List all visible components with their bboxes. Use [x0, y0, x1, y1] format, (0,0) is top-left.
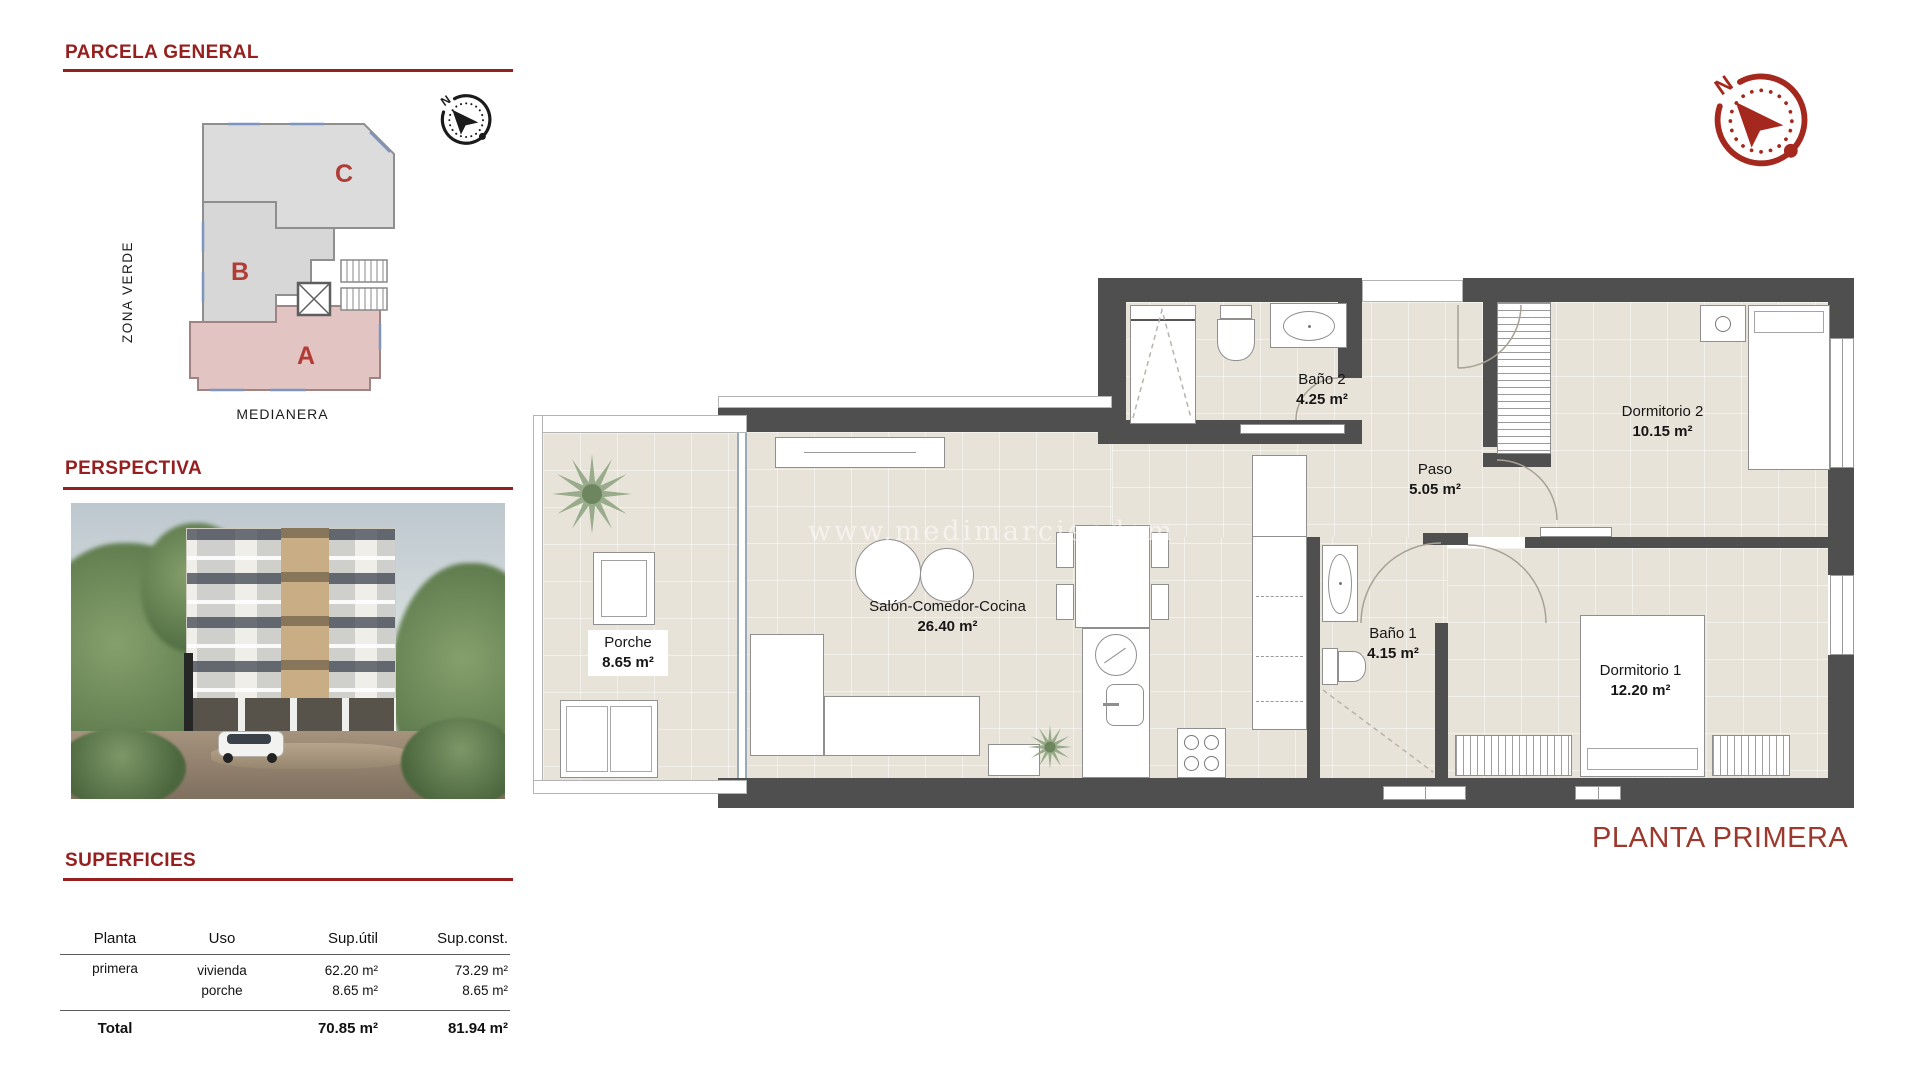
wall: [1483, 453, 1551, 467]
porch-wall: [533, 415, 747, 433]
wall: [1423, 533, 1468, 545]
window: [1575, 786, 1621, 800]
room-area: 4.15 m²: [1343, 644, 1443, 664]
porch-wall: [533, 415, 543, 794]
kitchen-sink: [1106, 684, 1144, 726]
room-label-bano1: Baño 1 4.15 m²: [1343, 624, 1443, 664]
cell-line: 73.29 m²: [380, 961, 508, 981]
round-table: [920, 548, 974, 602]
wall: [1307, 537, 1320, 778]
staircase: [1497, 302, 1551, 454]
cell-planta: primera: [60, 961, 170, 1002]
nightstand: [1700, 305, 1746, 342]
room-area: 12.20 m²: [1558, 681, 1723, 701]
room-name: Baño 2: [1272, 370, 1372, 390]
plant: [1028, 722, 1072, 772]
wall: [1828, 302, 1854, 338]
medianera-label: MEDIANERA: [200, 406, 365, 422]
brochure-page: { "accent_color": "#96201f", "compass_co…: [0, 0, 1920, 1080]
col-header: Planta: [60, 930, 170, 947]
room-area: 4.25 m²: [1272, 390, 1372, 410]
room-name: Salón-Comedor-Cocina: [860, 597, 1035, 617]
cell-line: vivienda: [170, 961, 274, 981]
window: [1362, 280, 1463, 302]
pillar: [184, 653, 193, 738]
window: [1383, 786, 1466, 800]
cell-line: 8.65 m²: [380, 981, 508, 1001]
stairs-shape: [341, 260, 387, 282]
towel-rail: [1240, 424, 1345, 434]
title-underline-3: [63, 878, 513, 881]
toilet: [1217, 319, 1255, 361]
table-total-row: Total 70.85 m² 81.94 m²: [60, 1011, 510, 1037]
car-window: [227, 734, 271, 744]
wall: [718, 778, 1854, 808]
room-area: 8.65 m²: [588, 653, 668, 673]
wall: [718, 408, 1112, 432]
total-sup-util: 70.85 m²: [274, 1020, 380, 1037]
kitchen-counter: [1252, 455, 1307, 730]
wall: [1483, 302, 1497, 447]
col-header: Sup.const.: [380, 930, 508, 947]
block-a-label: A: [297, 342, 315, 370]
parcela-general-title: PARCELA GENERAL: [65, 42, 259, 64]
total-label: Total: [60, 1020, 170, 1037]
chair: [1056, 584, 1074, 620]
perspectiva-title: PERSPECTIVA: [65, 458, 202, 480]
col-header: Uso: [170, 930, 274, 947]
room-name: Baño 1: [1343, 624, 1443, 644]
room-label-salon: Salón-Comedor-Cocina 26.40 m²: [860, 597, 1035, 637]
radiator: [1712, 735, 1790, 776]
room-name: Dormitorio 1: [1558, 661, 1723, 681]
car-wheel: [267, 753, 277, 763]
room-area: 26.40 m²: [860, 617, 1035, 637]
room-name: Dormitorio 2: [1580, 402, 1745, 422]
wall: [1463, 278, 1854, 302]
room-label-dormitorio1: Dormitorio 1 12.20 m²: [1558, 661, 1723, 701]
sofa: [750, 634, 824, 756]
compass-n-letter: N: [1710, 70, 1738, 100]
col-header: Sup.útil: [274, 930, 380, 947]
site-plan: C B A: [148, 110, 413, 405]
kitchen-basin: [1095, 634, 1137, 676]
porch-wall: [533, 780, 747, 794]
bathroom-counter: [1322, 545, 1358, 622]
compass-icon-small: N: [436, 90, 494, 148]
cell-uso: viviendaporche: [170, 961, 274, 1002]
bed: [1748, 305, 1830, 470]
room-label-porche: Porche 8.65 m²: [588, 630, 668, 676]
title-underline-2: [63, 487, 513, 490]
superficies-title: SUPERFICIES: [65, 850, 196, 872]
compass-n-letter: N: [438, 92, 453, 109]
porch-table: [593, 552, 655, 625]
car-wheel: [223, 753, 233, 763]
wall: [1828, 468, 1854, 575]
bathroom-counter: [1270, 303, 1347, 348]
wall: [1098, 278, 1362, 302]
zona-verde-label: ZONA VERDE: [120, 203, 135, 343]
block-c-label: C: [335, 160, 353, 188]
block-b-label: B: [231, 258, 249, 286]
window: [1830, 575, 1854, 655]
cell-line: porche: [170, 981, 274, 1001]
surfaces-table: Planta Uso Sup.útil Sup.const. primera v…: [60, 930, 510, 1037]
round-table: [855, 539, 921, 605]
radiator: [1455, 735, 1572, 776]
sofa-chaise: [824, 696, 980, 756]
room-name: Paso: [1385, 460, 1485, 480]
room-label-bano2: Baño 2 4.25 m²: [1272, 370, 1372, 410]
toilet-cistern: [1322, 648, 1338, 685]
room-label-dormitorio2: Dormitorio 2 10.15 m²: [1580, 402, 1745, 442]
window: [1830, 338, 1854, 468]
room-label-paso: Paso 5.05 m²: [1385, 460, 1485, 500]
perspective-render: [71, 503, 505, 799]
stairs-shape-2: [341, 288, 387, 310]
shelf: [1540, 527, 1612, 537]
table-row: primera viviendaporche 62.20 m²8.65 m² 7…: [60, 955, 510, 1011]
building-center-column: [281, 528, 329, 718]
title-underline: [63, 69, 513, 72]
room-name: Porche: [588, 633, 668, 653]
cell-line: 8.65 m²: [274, 981, 378, 1001]
palm-plant: [552, 452, 632, 536]
plan-title: PLANTA PRIMERA: [1592, 822, 1848, 855]
watermark: www.medimarciendom: [808, 516, 1175, 547]
total-sup-const: 81.94 m²: [380, 1020, 508, 1037]
porch-bench: [560, 700, 658, 778]
room-area: 10.15 m²: [1580, 422, 1745, 442]
room-area: 5.05 m²: [1385, 480, 1485, 500]
toilet-cistern: [1220, 305, 1252, 319]
cell-sup-const: 73.29 m²8.65 m²: [380, 961, 508, 1002]
glass-wall: [737, 433, 747, 778]
sideboard: [775, 437, 945, 468]
cell-line: 62.20 m²: [274, 961, 378, 981]
cell-sup-util: 62.20 m²8.65 m²: [274, 961, 380, 1002]
wall: [1525, 537, 1830, 548]
window-sill: [718, 396, 1112, 408]
chair: [1151, 584, 1169, 620]
stove-icon: [1177, 728, 1226, 778]
compass-icon-large: N: [1706, 66, 1812, 172]
floor-plan: Porche 8.65 m² Salón-Comedor-Cocina 26.4…: [533, 278, 1855, 810]
table-header-row: Planta Uso Sup.útil Sup.const.: [60, 930, 510, 955]
shower: [1130, 305, 1196, 424]
